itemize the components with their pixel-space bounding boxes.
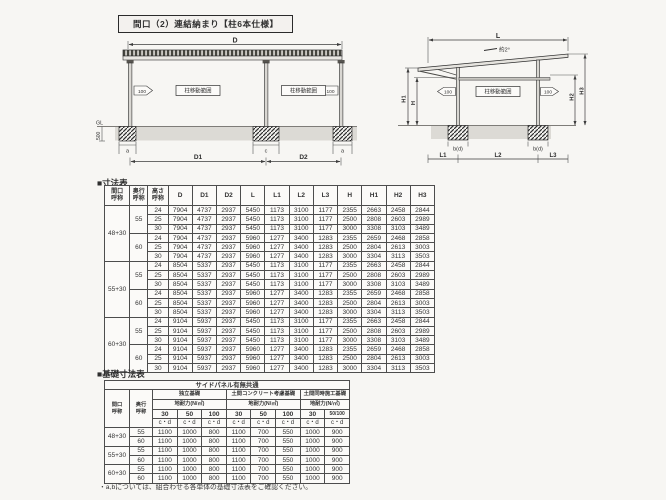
footing-label-rear: b(d) [533,147,543,153]
dim-value-cell: 5450 [241,336,265,345]
foundation-value-cell: 1000 [177,455,202,464]
dim-value-cell: 5337 [192,261,216,270]
dim-value-cell: 1177 [313,271,337,280]
dim-value-cell: 3113 [386,252,410,261]
dim-value-cell: 1177 [313,215,337,224]
dim-value-cell: 9104 [168,326,192,335]
footing-front [448,126,468,141]
dim-value-cell: 9104 [168,336,192,345]
dimension-label-500: 500 [96,131,102,140]
dim-value-cell: 1177 [313,280,337,289]
dim-value-cell: 2808 [362,215,386,224]
dim-table-header-cell: L2 [289,186,313,206]
foundation-value-cell: 900 [325,465,350,474]
dim-table-header-cell: 高さ 呼称 [148,186,168,206]
bearing-capacity-header: 地耐力(N/㎡) [300,400,349,410]
dim-value-cell: 2808 [362,326,386,335]
dim-value-cell: 4737 [192,243,216,252]
dim-value-cell: 5337 [192,298,216,307]
post-left [128,63,132,127]
dim-value-cell: 2468 [386,289,410,298]
dim-value-cell: 1277 [265,308,289,317]
dim-value-cell: 3100 [289,326,313,335]
depth-name-cell: 55 [130,446,153,455]
dim-value-cell: 1283 [313,354,337,363]
dim-value-cell: 1177 [313,206,337,215]
foundation-value-cell: 800 [202,446,227,455]
capacity-value-header: 100 [202,410,227,419]
dim-value-cell: 5450 [241,215,265,224]
height-name-cell: 30 [148,308,168,317]
dim-value-cell: 3000 [338,252,362,261]
side-beam [459,78,550,81]
foundation-value-cell: 800 [202,428,227,437]
height-name-cell: 24 [148,345,168,354]
foundation-value-cell: 550 [276,465,301,474]
height-name-cell: 25 [148,298,168,307]
dim-value-cell: 2937 [216,308,240,317]
dim-value-cell: 2458 [386,317,410,326]
dim-value-cell: 1277 [265,298,289,307]
foundation-table-title: ■基礎寸法表 [97,368,145,380]
dim-value-cell: 5960 [241,252,265,261]
dim-value-cell: 2613 [386,354,410,363]
dim-value-cell: 7904 [168,206,192,215]
dim-value-cell: 2937 [216,206,240,215]
roof-panel [418,54,568,71]
dim-value-cell: 1277 [265,364,289,373]
dimension-label-h3: H3 [580,87,586,95]
dimension-label-l2: L2 [494,153,502,159]
dim-value-cell: 3100 [289,224,313,233]
foundation-value-cell: 550 [276,437,301,446]
dim-value-cell: 2858 [410,289,434,298]
height-name-cell: 24 [148,289,168,298]
dimension-label-h2: H2 [570,93,576,100]
dim-value-cell: 5450 [241,280,265,289]
dim-value-cell: 3400 [289,345,313,354]
foundation-value-cell: 800 [202,437,227,446]
slope-line [484,49,497,51]
foundation-table-row: 48+30551100100080011007005501000900 [105,428,350,437]
dim-value-cell: 3503 [410,364,434,373]
offset-value-right: 100 [326,89,334,95]
dim-value-cell: 3113 [386,364,410,373]
dim-value-cell: 1173 [265,317,289,326]
dim-value-cell: 1173 [265,336,289,345]
front-view-diagram: D 100 100 柱移動範囲 柱移動範囲 GL 500 a c a D1 D2 [95,36,360,171]
foundation-table-row: 55+30551100100080011007005501000900 [105,446,350,455]
dim-value-cell: 2937 [216,224,240,233]
dim-value-cell: 2603 [386,215,410,224]
dim-table-header-cell: 間口 呼称 [105,186,130,206]
dim-value-cell: 8504 [168,289,192,298]
dim-value-cell: 1177 [313,326,337,335]
height-name-cell: 30 [148,252,168,261]
dim-value-cell: 2500 [338,215,362,224]
foundation-value-cell: 700 [251,437,276,446]
dim-table-header-cell: H2 [386,186,410,206]
dimension-table: 間口 呼称奥行 呼称高さ 呼称DD1D2LL1L2L3HH1H2H348+305… [104,185,435,373]
dim-value-cell: 1277 [265,345,289,354]
dim-value-cell: 4737 [192,206,216,215]
foundation-value-cell: 900 [325,474,350,483]
foundation-value-cell: 1000 [300,465,325,474]
foundation-value-cell: 1000 [300,455,325,464]
dimension-label-l1: L1 [439,153,447,159]
footing-rear [528,126,548,141]
dimension-label-l3: L3 [549,153,557,159]
foundation-value-cell: 1000 [177,446,202,455]
cd-header-cell: c・d [226,419,251,428]
dim-value-cell: 1277 [265,354,289,363]
dim-value-cell: 5960 [241,289,265,298]
dim-value-cell: 3100 [289,261,313,270]
dim-value-cell: 9104 [168,317,192,326]
dim-value-cell: 3304 [362,308,386,317]
foundation-value-cell: 700 [251,428,276,437]
dim-value-cell: 1283 [313,364,337,373]
dim-value-cell: 3103 [386,224,410,233]
dim-value-cell: 1173 [265,280,289,289]
dim-value-cell: 2937 [216,364,240,373]
height-name-cell: 24 [148,233,168,242]
dim-table-header-row: 間口 呼称奥行 呼称高さ 呼称DD1D2LL1L2L3HH1H2H3 [105,186,435,206]
dim-value-cell: 2937 [216,243,240,252]
dim-value-cell: 3103 [386,280,410,289]
dim-table-row: 2591045937293759601277340012832500280426… [105,354,435,363]
front-brace [420,71,458,79]
dim-value-cell: 5450 [241,224,265,233]
dim-value-cell: 5960 [241,364,265,373]
dim-value-cell: 3400 [289,308,313,317]
foundation-value-cell: 900 [325,437,350,446]
foundation-type-header: 土間コンクリート考慮基礎 [226,390,300,400]
dim-table-header-cell: L3 [313,186,337,206]
gl-label: GL [96,121,103,127]
dim-value-cell: 3489 [410,280,434,289]
foundation-value-cell: 1100 [226,428,251,437]
dim-value-cell: 2659 [362,289,386,298]
dim-value-cell: 3400 [289,298,313,307]
dim-value-cell: 1177 [313,261,337,270]
dim-value-cell: 5450 [241,326,265,335]
foundation-value-cell: 550 [276,455,301,464]
dim-value-cell: 2355 [338,261,362,270]
bearing-capacity-header: 地耐力(N/㎡) [153,400,227,410]
dim-value-cell: 1283 [313,252,337,261]
dim-value-cell: 3308 [362,280,386,289]
dim-value-cell: 3304 [362,364,386,373]
foundation-value-cell: 1100 [153,455,178,464]
dim-value-cell: 3304 [362,252,386,261]
dim-table-row: 3091045937293759601277340012833000330431… [105,364,435,373]
dim-value-cell: 2355 [338,317,362,326]
dim-value-cell: 4737 [192,215,216,224]
depth-name-cell: 55 [130,317,148,345]
height-name-cell: 30 [148,224,168,233]
dimension-label-d: D [232,38,237,45]
dim-value-cell: 3308 [362,224,386,233]
dim-value-cell: 5937 [192,345,216,354]
foundation-value-cell: 1100 [153,437,178,446]
height-name-cell: 30 [148,336,168,345]
post-center [264,63,268,127]
dimension-label-d1: D1 [194,154,203,161]
foundation-value-cell: 800 [202,465,227,474]
height-name-cell: 24 [148,317,168,326]
foundation-value-cell: 1000 [177,465,202,474]
dimension-label-d2: D2 [299,154,308,161]
width-name-cell: 60+30 [105,317,130,373]
dim-value-cell: 2458 [386,206,410,215]
dim-value-cell: 1283 [313,243,337,252]
dim-table-row: 2585045337293754501173310011772500280826… [105,271,435,280]
dim-value-cell: 2355 [338,345,362,354]
dim-value-cell: 2613 [386,243,410,252]
dim-value-cell: 2458 [386,261,410,270]
dim-value-cell: 5450 [241,317,265,326]
dim-table-row: 2579044737293754501173310011772500280826… [105,215,435,224]
dim-value-cell: 2858 [410,233,434,242]
dim-value-cell: 5937 [192,317,216,326]
foundation-value-cell: 1100 [153,428,178,437]
dim-value-cell: 4737 [192,252,216,261]
dim-value-cell: 8504 [168,261,192,270]
dim-value-cell: 3113 [386,308,410,317]
foundation-type-header: 土間同時施工基礎 [300,390,349,400]
dim-table-row: 48+3055247904473729375450117331001177235… [105,206,435,215]
cd-header-cell: c・d [202,419,227,428]
height-name-cell: 30 [148,364,168,373]
dim-table-row: 3091045937293754501173310011773000330831… [105,336,435,345]
depth-name-cell: 55 [130,261,148,289]
roof-panel [123,50,342,56]
capacity-value-header: 50/100 [325,410,350,419]
dim-table-row: 6024910459372937596012773400128323552659… [105,345,435,354]
foundation-value-cell: 700 [251,455,276,464]
dim-table-row: 2585045337293759601277340012832500280426… [105,298,435,307]
foundation-table: サイドパネル有無共通間口 呼称奥行 呼称独立基礎土間コンクリート考慮基礎土間同時… [104,380,350,484]
cd-header-cell: c・d [300,419,325,428]
dim-value-cell: 3308 [362,336,386,345]
dim-value-cell: 7904 [168,252,192,261]
dim-value-cell: 2858 [410,345,434,354]
capacity-value-header: 50 [251,410,276,419]
dim-value-cell: 8504 [168,271,192,280]
dim-value-cell: 2937 [216,289,240,298]
dim-value-cell: 1283 [313,345,337,354]
height-name-cell: 25 [148,215,168,224]
width-name-header: 間口 呼称 [105,390,130,428]
capacity-value-header: 30 [153,410,178,419]
dim-table-header-cell: H3 [410,186,434,206]
dim-value-cell: 1173 [265,215,289,224]
dim-value-cell: 2804 [362,243,386,252]
range-label: 柱移動範囲 [485,88,512,96]
cd-header-cell: c・d [251,419,276,428]
foundation-table-row: 601100100080011007005501000900 [105,455,350,464]
dim-value-cell: 1173 [265,261,289,270]
dim-value-cell: 2663 [362,261,386,270]
depth-name-cell: 55 [130,465,153,474]
dim-value-cell: 2613 [386,298,410,307]
dim-value-cell: 9104 [168,364,192,373]
dim-value-cell: 2937 [216,345,240,354]
width-name-cell: 48+30 [105,428,130,447]
ground-band [115,127,357,141]
dim-value-cell: 2663 [362,317,386,326]
dim-value-cell: 1283 [313,298,337,307]
foundation-value-cell: 900 [325,455,350,464]
footing-center [253,127,279,142]
dimension-label-h1: H1 [402,95,408,103]
foundation-value-cell: 1100 [153,446,178,455]
cd-header-cell: c・d [325,419,350,428]
dim-value-cell: 1177 [313,224,337,233]
dim-value-cell: 2659 [362,233,386,242]
foundation-type-header: 独立基礎 [153,390,227,400]
dim-value-cell: 3000 [338,224,362,233]
dim-value-cell: 5960 [241,243,265,252]
dim-value-cell: 3103 [386,336,410,345]
dim-value-cell: 3100 [289,215,313,224]
dim-table-row: 2591045937293754501173310011772500280826… [105,326,435,335]
dim-value-cell: 3503 [410,308,434,317]
foundation-value-cell: 1000 [300,437,325,446]
post-front [456,68,459,126]
dim-value-cell: 2804 [362,354,386,363]
dim-table-row: 60+3055249104593729375450117331001177235… [105,317,435,326]
side-view-diagram: L 約2° 100 100 柱移動範囲 b(d) b(d) L1 L2 L3 H… [398,33,603,168]
dim-value-cell: 3503 [410,252,434,261]
dim-value-cell: 3000 [338,280,362,289]
dim-value-cell: 1177 [313,317,337,326]
dim-value-cell: 2989 [410,271,434,280]
roof-beam [123,56,342,60]
footing-left [119,127,136,142]
foundation-table-row: 60+30551100100080011007005501000900 [105,465,350,474]
dim-value-cell: 2659 [362,345,386,354]
foundation-top-header-row: サイドパネル有無共通 [105,381,350,390]
height-name-cell: 24 [148,206,168,215]
dim-value-cell: 2937 [216,252,240,261]
width-name-cell: 55+30 [105,446,130,465]
dim-value-cell: 3003 [410,298,434,307]
dim-table-header-cell: D1 [192,186,216,206]
dim-value-cell: 2355 [338,206,362,215]
dim-value-cell: 2468 [386,345,410,354]
height-name-cell: 25 [148,243,168,252]
dim-value-cell: 3400 [289,243,313,252]
footing-right [333,127,352,142]
dim-value-cell: 5937 [192,354,216,363]
dim-value-cell: 3400 [289,252,313,261]
dim-value-cell: 7904 [168,224,192,233]
dim-value-cell: 2937 [216,298,240,307]
dim-value-cell: 2937 [216,280,240,289]
dim-value-cell: 2937 [216,317,240,326]
dim-table-row: 3079044737293759601277340012833000330431… [105,252,435,261]
dim-table-header-cell: L [241,186,265,206]
foundation-value-cell: 1100 [226,455,251,464]
dim-value-cell: 5960 [241,345,265,354]
slope-label: 約2° [499,46,510,54]
dim-table-row: 3079044737293754501173310011773000330831… [105,224,435,233]
dim-value-cell: 4737 [192,224,216,233]
foundation-value-cell: 1100 [226,437,251,446]
dim-value-cell: 5960 [241,233,265,242]
foundation-value-cell: 1000 [177,437,202,446]
dim-value-cell: 3100 [289,271,313,280]
dim-table-header-cell: L1 [265,186,289,206]
dim-value-cell: 3400 [289,364,313,373]
front-brace [438,70,458,76]
dim-value-cell: 1283 [313,289,337,298]
dim-value-cell: 2937 [216,233,240,242]
foundation-group-row: 間口 呼称奥行 呼称独立基礎土間コンクリート考慮基礎土間同時施工基礎 [105,390,350,400]
offset-value-right: 100 [544,90,552,96]
dim-value-cell: 3400 [289,289,313,298]
foundation-value-cell: 1000 [300,446,325,455]
dim-value-cell: 3489 [410,224,434,233]
dim-value-cell: 1173 [265,326,289,335]
dim-value-cell: 2844 [410,261,434,270]
dim-value-cell: 5937 [192,364,216,373]
footing-label-front: b(d) [453,147,463,153]
dim-value-cell: 2844 [410,317,434,326]
dim-table-header-cell: D [168,186,192,206]
dim-table-header-cell: H1 [362,186,386,206]
dim-value-cell: 3400 [289,233,313,242]
dim-value-cell: 2355 [338,289,362,298]
foundation-value-cell: 550 [276,446,301,455]
depth-name-cell: 60 [130,437,153,446]
dim-value-cell: 5937 [192,336,216,345]
depth-name-cell: 60 [130,455,153,464]
catalog-page: { "page": { "title": "間口（2）連結納まり【柱6本仕様】"… [0,0,666,500]
post-rear [536,60,539,126]
height-name-cell: 24 [148,261,168,270]
range-label-right: 柱移動範囲 [290,87,317,95]
capacity-value-header: 50 [177,410,202,419]
dim-value-cell: 5337 [192,280,216,289]
dim-value-cell: 3100 [289,317,313,326]
dim-value-cell: 2500 [338,243,362,252]
dim-value-cell: 2844 [410,206,434,215]
dimension-label-a-right: a [341,149,345,155]
dim-value-cell: 1177 [313,336,337,345]
dim-table-header-cell: 奥行 呼称 [130,186,148,206]
dim-value-cell: 1173 [265,224,289,233]
dim-table-header-cell: D2 [216,186,240,206]
dim-table-row: 6024850453372937596012773400128323552659… [105,289,435,298]
footnote: ・a,bについては、組合わせる各単体の基礎寸法表をご確認ください。 [99,481,312,491]
dim-value-cell: 5337 [192,289,216,298]
dim-value-cell: 3000 [338,308,362,317]
range-label-left: 柱移動範囲 [185,87,212,95]
dim-value-cell: 2663 [362,206,386,215]
height-name-cell: 25 [148,354,168,363]
dim-value-cell: 2500 [338,271,362,280]
dim-value-cell: 3003 [410,243,434,252]
foundation-value-cell: 1100 [226,465,251,474]
dim-value-cell: 2937 [216,354,240,363]
foundation-table-row: 601100100080011007005501000900 [105,437,350,446]
dim-value-cell: 3003 [410,354,434,363]
post-right [339,63,343,127]
foundation-value-cell: 550 [276,428,301,437]
